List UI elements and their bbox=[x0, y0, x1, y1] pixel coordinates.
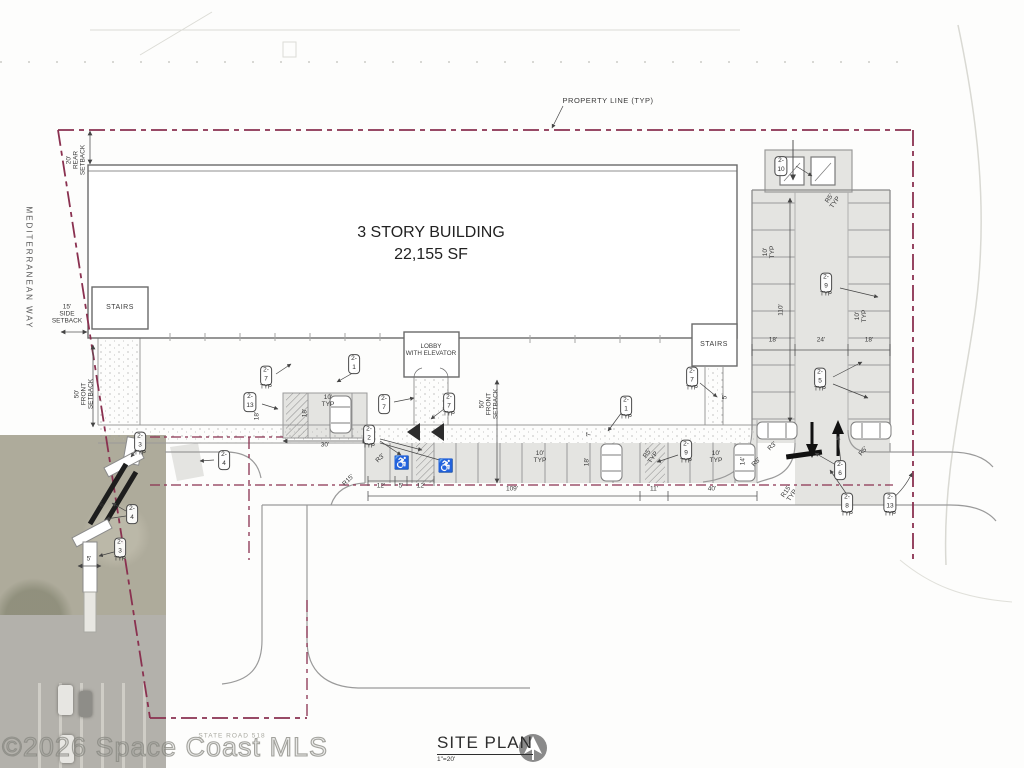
callout-2-7: 2-7TYP bbox=[686, 367, 698, 392]
dimension-label: 5' bbox=[399, 484, 404, 491]
callout-bubble: 2-13 bbox=[883, 493, 896, 513]
callout-typ-label: TYP bbox=[260, 384, 272, 390]
callout-bubble: 2-9 bbox=[680, 440, 692, 460]
dimension-label: 18' bbox=[769, 338, 777, 345]
dimension-label: 18' bbox=[303, 409, 310, 417]
callout-2-1: 2-1 bbox=[348, 354, 360, 374]
callout-typ-label: TYP bbox=[363, 443, 375, 449]
callout-2-3: 2-3TYP bbox=[114, 538, 126, 563]
handicap-icon: ♿ bbox=[394, 455, 410, 471]
callout-typ-label: TYP bbox=[883, 511, 896, 517]
callout-bubble: 2-10 bbox=[774, 156, 787, 176]
mls-watermark: ©2026 Space Coast MLS bbox=[2, 732, 328, 763]
dimension-label: 18' bbox=[585, 458, 592, 466]
title-block: SITE PLAN 1"=20' bbox=[437, 733, 533, 763]
callout-typ-label: TYP bbox=[841, 511, 853, 517]
car bbox=[851, 422, 891, 439]
callout-bubble: 2-3 bbox=[134, 432, 146, 452]
dimension-label: 40' bbox=[708, 487, 716, 494]
setback-front-west-label: 50' FRONT SETBACK bbox=[73, 379, 94, 409]
callout-bubble: 2-7 bbox=[443, 393, 455, 413]
dimension-label: 5' bbox=[723, 395, 730, 400]
callout-2-13: 2-13TYP bbox=[883, 493, 896, 518]
callout-bubble: 2-7 bbox=[378, 394, 390, 414]
dimension-label: 10' TYP bbox=[322, 395, 335, 409]
callout-2-9: 2-9TYP bbox=[820, 273, 832, 298]
callout-bubble: 2-1 bbox=[620, 396, 632, 416]
callout-2-5: 2-5TYP bbox=[814, 368, 826, 393]
callout-typ-label: TYP bbox=[820, 291, 832, 297]
callout-2-8: 2-8TYP bbox=[841, 493, 853, 518]
callout-2-4: 2-4 bbox=[218, 450, 230, 470]
callout-2-1: 2-1TYP bbox=[620, 396, 632, 421]
callout-2-6: 2-6 bbox=[834, 460, 846, 480]
callout-2-7: 2-7 bbox=[378, 394, 390, 414]
callout-typ-label: TYP bbox=[114, 556, 126, 562]
setback-rear-label: 20' REAR SETBACK bbox=[65, 145, 86, 175]
site-plan-page: 3 STORY BUILDING 22,155 SF STAIRS STAIRS… bbox=[0, 0, 1024, 768]
callout-typ-label: TYP bbox=[134, 450, 146, 456]
dimension-label: 18' bbox=[255, 412, 262, 420]
callout-bubble: 2-3 bbox=[114, 538, 126, 558]
setback-side-label: 15' SIDE SETBACK bbox=[52, 303, 82, 324]
dimension-label: 10' TYP bbox=[763, 246, 777, 259]
drawing-scale: 1"=20' bbox=[437, 756, 533, 763]
car bbox=[757, 422, 797, 439]
callout-bubble: 2-2 bbox=[363, 425, 375, 445]
building-area: 22,155 SF bbox=[394, 246, 468, 264]
site-plan-linework bbox=[0, 0, 1024, 768]
callout-bubble: 2-1 bbox=[348, 354, 360, 374]
property-line-label: PROPERTY LINE (TYP) bbox=[563, 97, 654, 105]
building-name: 3 STORY BUILDING bbox=[357, 224, 505, 242]
callout-2-4: 2-4 bbox=[126, 504, 138, 524]
dimension-label: 18' bbox=[865, 338, 873, 345]
dimension-label: 12' bbox=[417, 484, 425, 491]
callout-typ-label: TYP bbox=[680, 458, 692, 464]
dimension-label: 11' bbox=[650, 487, 658, 494]
callout-2-13: 2-13 bbox=[243, 392, 256, 412]
dimension-label: 30' bbox=[321, 443, 329, 450]
callout-2-3: 2-3TYP bbox=[134, 432, 146, 457]
stairs-left-label: STAIRS bbox=[106, 304, 134, 312]
dimension-label: 110' bbox=[779, 304, 786, 316]
dimension-label: 10' TYP bbox=[710, 451, 723, 465]
callout-typ-label: TYP bbox=[443, 411, 455, 417]
dimension-label: 14' bbox=[741, 457, 748, 465]
crosswalk bbox=[72, 437, 144, 632]
drawing-title: SITE PLAN bbox=[437, 733, 533, 755]
callout-bubble: 2-4 bbox=[218, 450, 230, 470]
right-parking-lot bbox=[752, 190, 890, 443]
callout-bubble: 2-8 bbox=[841, 493, 853, 513]
dimension-label: 10' TYP bbox=[855, 310, 869, 323]
handicap-icon: ♿ bbox=[438, 458, 454, 474]
stairs-right-label: STAIRS bbox=[700, 341, 728, 349]
dimension-label: 10' TYP bbox=[534, 451, 547, 465]
callout-bubble: 2-5 bbox=[814, 368, 826, 388]
street-name-west: MEDITERRANEAN WAY bbox=[24, 207, 33, 330]
dimension-label: 7' bbox=[587, 432, 594, 437]
setback-front-center-label: 50' FRONT SETBACK bbox=[478, 389, 499, 419]
dimension-label: 12' bbox=[377, 484, 385, 491]
callout-bubble: 2-13 bbox=[243, 392, 256, 412]
callout-bubble: 2-7 bbox=[686, 367, 698, 387]
callout-2-7: 2-7TYP bbox=[443, 393, 455, 418]
callout-bubble: 2-4 bbox=[126, 504, 138, 524]
callout-bubble: 2-9 bbox=[820, 273, 832, 293]
callout-2-2: 2-2TYP bbox=[363, 425, 375, 450]
car bbox=[601, 444, 622, 481]
callout-typ-label: TYP bbox=[686, 385, 698, 391]
callout-2-7: 2-7TYP bbox=[260, 366, 272, 391]
dimension-label: 5' bbox=[87, 557, 92, 564]
callout-bubble: 2-7 bbox=[260, 366, 272, 386]
callout-typ-label: TYP bbox=[814, 386, 826, 392]
lobby-label: LOBBY WITH ELEVATOR bbox=[406, 344, 456, 358]
dimension-label: 24' bbox=[817, 338, 825, 345]
dimension-label: 109' bbox=[506, 487, 518, 494]
callout-typ-label: TYP bbox=[620, 414, 632, 420]
callout-bubble: 2-6 bbox=[834, 460, 846, 480]
callout-2-9: 2-9TYP bbox=[680, 440, 692, 465]
curb-wedge bbox=[170, 443, 204, 481]
callout-2-10: 2-10 bbox=[774, 156, 787, 176]
